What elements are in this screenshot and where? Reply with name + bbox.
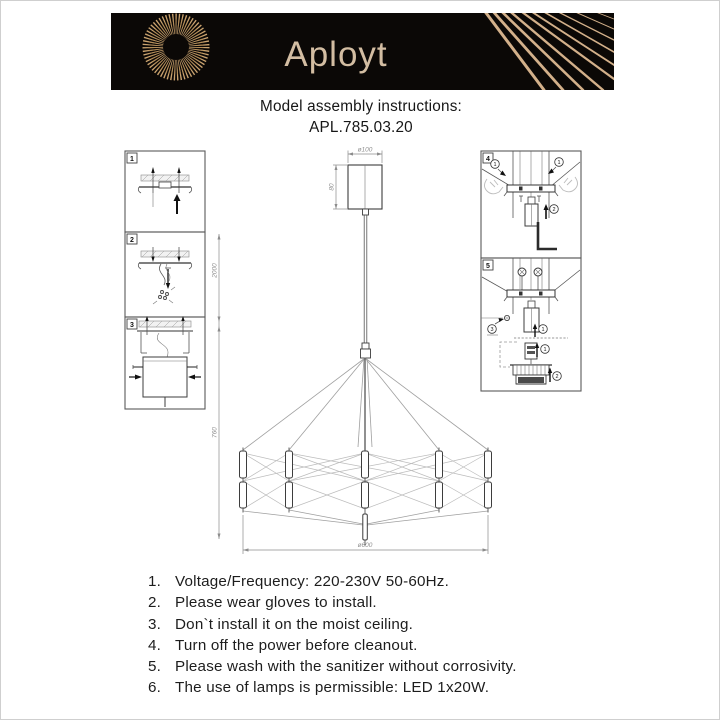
dim-suspension-length: 2000 (212, 263, 219, 279)
instruction-number: 1. (148, 571, 175, 592)
step-panel-1: 1 (125, 151, 205, 232)
step-panel-3: 3 (125, 316, 205, 409)
main-fixture-drawing: ø100 80 (212, 147, 492, 555)
dim-canopy-diameter: ø100 (358, 147, 373, 154)
step-number-3: 3 (130, 322, 134, 329)
allen-key-icon (538, 222, 557, 249)
instruction-item: 1. Voltage/Frequency: 220-230V 50-60Hz. (148, 571, 588, 592)
instructions-list: 1. Voltage/Frequency: 220-230V 50-60Hz. … (148, 571, 588, 699)
step-panel-5: 5 3 (481, 258, 581, 391)
instruction-number: 3. (148, 614, 175, 635)
hand-sketch-right (559, 177, 578, 192)
svg-text:1: 1 (541, 327, 544, 333)
callout-3-panel5: 3 (487, 318, 504, 335)
svg-text:2: 2 (552, 207, 555, 213)
step-number-2: 2 (130, 237, 134, 244)
instruction-item: 5. Please wash with the sanitizer withou… (148, 656, 588, 677)
instruction-number: 6. (148, 677, 175, 698)
instruction-item: 3. Don`t install it on the moist ceiling… (148, 614, 588, 635)
callout-2-panel4: 2 (544, 204, 559, 219)
instruction-number: 2. (148, 592, 175, 613)
dim-canopy-height: 80 (329, 183, 336, 191)
svg-text:1: 1 (493, 162, 496, 168)
instruction-item: 6. The use of lamps is permissible: LED … (148, 677, 588, 698)
step-number-5: 5 (486, 263, 490, 270)
svg-text:1: 1 (557, 160, 560, 166)
instruction-number: 5. (148, 656, 175, 677)
hand-sketch-left (485, 179, 504, 194)
dim-body-diameter: ø600 (358, 542, 373, 549)
page-root: Aployt Model assembly instructions: APL.… (0, 0, 720, 720)
callout-2-panel5: 2 (548, 368, 562, 383)
instruction-number: 4. (148, 635, 175, 656)
instruction-text: Don`t install it on the moist ceiling. (175, 614, 413, 635)
instruction-text: Please wear gloves to install. (175, 592, 377, 613)
instruction-text: Voltage/Frequency: 220-230V 50-60Hz. (175, 571, 449, 592)
instruction-item: 2. Please wear gloves to install. (148, 592, 588, 613)
instruction-text: Please wash with the sanitizer without c… (175, 656, 517, 677)
tube-lamps (240, 451, 492, 540)
step-number-4: 4 (486, 156, 490, 163)
step-panel-2: 2 (125, 232, 205, 317)
instruction-item: 4. Turn off the power before cleanout. (148, 635, 588, 656)
callout-1-right: 1 (548, 158, 563, 174)
lamp-socket-drawing (510, 365, 552, 384)
svg-text:3: 3 (490, 327, 493, 333)
screw-head-icons (518, 268, 542, 290)
step-panel-4: 4 1 1 (481, 151, 581, 258)
callout-1-left: 1 (491, 160, 506, 176)
step-number-1: 1 (130, 156, 134, 163)
svg-text:1: 1 (543, 347, 546, 353)
instruction-text: The use of lamps is permissible: LED 1x2… (175, 677, 489, 698)
callout-1-upper-panel5: 1 (533, 324, 548, 338)
instruction-text: Turn off the power before cleanout. (175, 635, 418, 656)
dim-body-height: 760 (212, 427, 219, 438)
svg-text:2: 2 (555, 374, 558, 380)
callout-1-lower-panel5: 1 (535, 343, 550, 358)
